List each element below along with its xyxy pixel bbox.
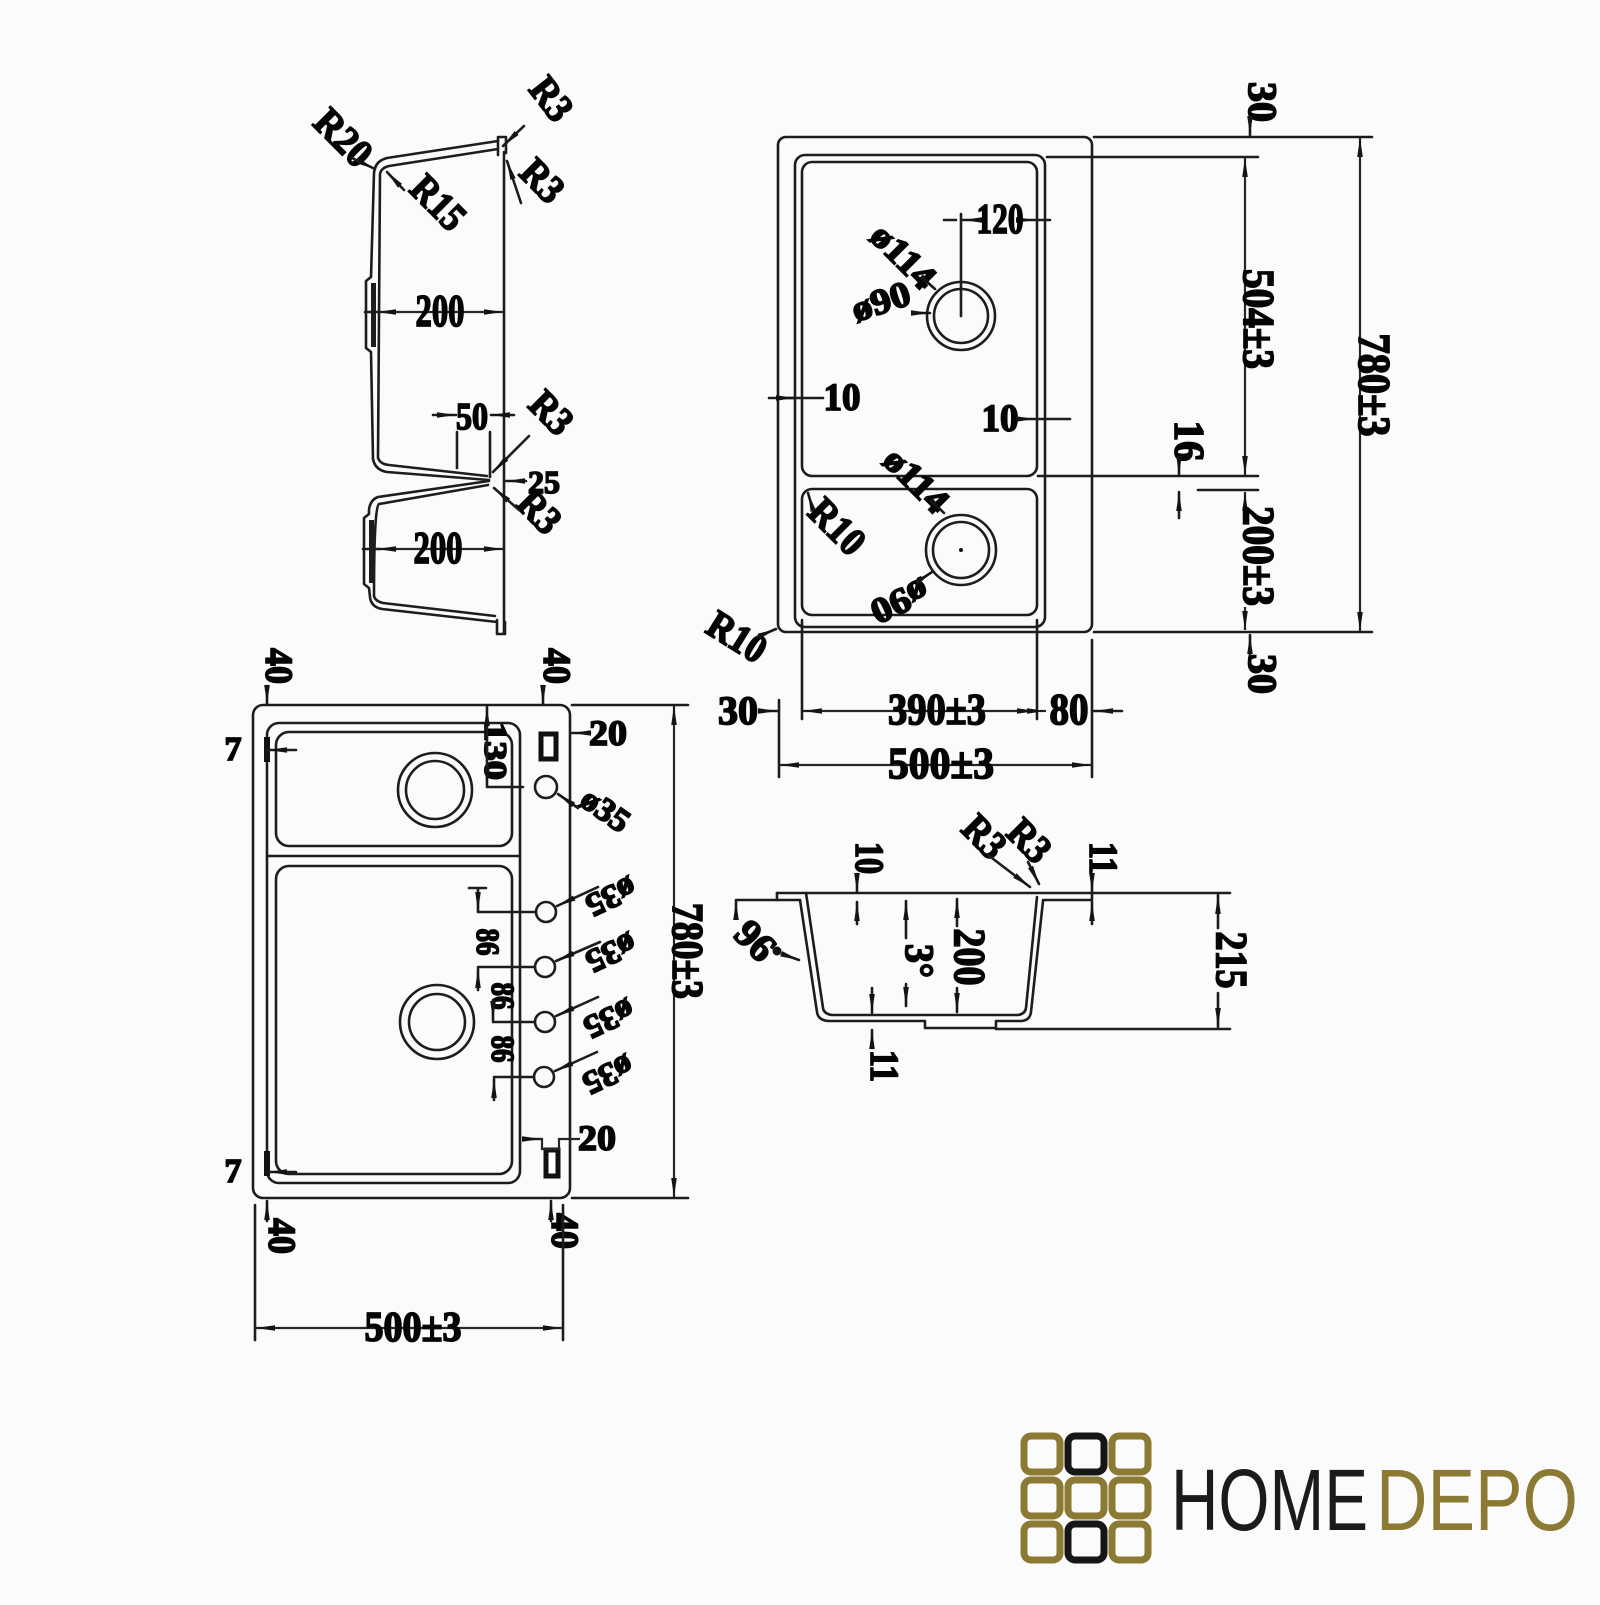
svg-text:215: 215	[1207, 932, 1256, 989]
svg-text:86: 86	[469, 929, 505, 956]
svg-text:30: 30	[718, 688, 758, 733]
svg-text:3°: 3°	[897, 944, 942, 978]
svg-text:390±3: 390±3	[888, 685, 986, 734]
svg-text:20: 20	[589, 713, 627, 753]
svg-text:7: 7	[225, 731, 242, 768]
svg-text:DEPO: DEPO	[1376, 1452, 1578, 1549]
svg-text:780±3: 780±3	[663, 903, 712, 999]
svg-text:20: 20	[578, 1118, 616, 1158]
svg-text:30: 30	[1240, 654, 1285, 694]
svg-text:HOME: HOME	[1171, 1452, 1368, 1549]
svg-text:40: 40	[543, 1213, 586, 1249]
svg-text:780±3: 780±3	[1349, 334, 1400, 437]
svg-text:40: 40	[257, 648, 300, 684]
svg-text:30: 30	[1240, 82, 1285, 122]
svg-text:10: 10	[824, 376, 861, 419]
svg-text:11: 11	[862, 1050, 907, 1082]
svg-text:500±3: 500±3	[365, 1305, 462, 1351]
svg-text:120: 120	[977, 197, 1024, 243]
svg-text:50: 50	[456, 396, 488, 438]
svg-text:86: 86	[484, 1036, 520, 1063]
svg-text:10: 10	[982, 397, 1019, 440]
svg-text:16: 16	[1165, 421, 1211, 462]
svg-text:7: 7	[225, 1153, 242, 1190]
svg-text:11: 11	[1081, 842, 1126, 874]
svg-text:130: 130	[478, 722, 514, 780]
svg-text:86: 86	[484, 983, 520, 1010]
svg-text:200: 200	[416, 286, 465, 336]
svg-text:40: 40	[535, 648, 578, 684]
svg-text:80: 80	[1050, 685, 1089, 734]
svg-text:504±3: 504±3	[1234, 269, 1283, 369]
svg-text:500±3: 500±3	[888, 739, 994, 788]
svg-text:200: 200	[414, 523, 463, 573]
svg-text:40: 40	[260, 1218, 303, 1254]
svg-text:200±3: 200±3	[1234, 506, 1283, 606]
svg-text:200: 200	[945, 929, 994, 986]
svg-text:10: 10	[847, 842, 892, 874]
